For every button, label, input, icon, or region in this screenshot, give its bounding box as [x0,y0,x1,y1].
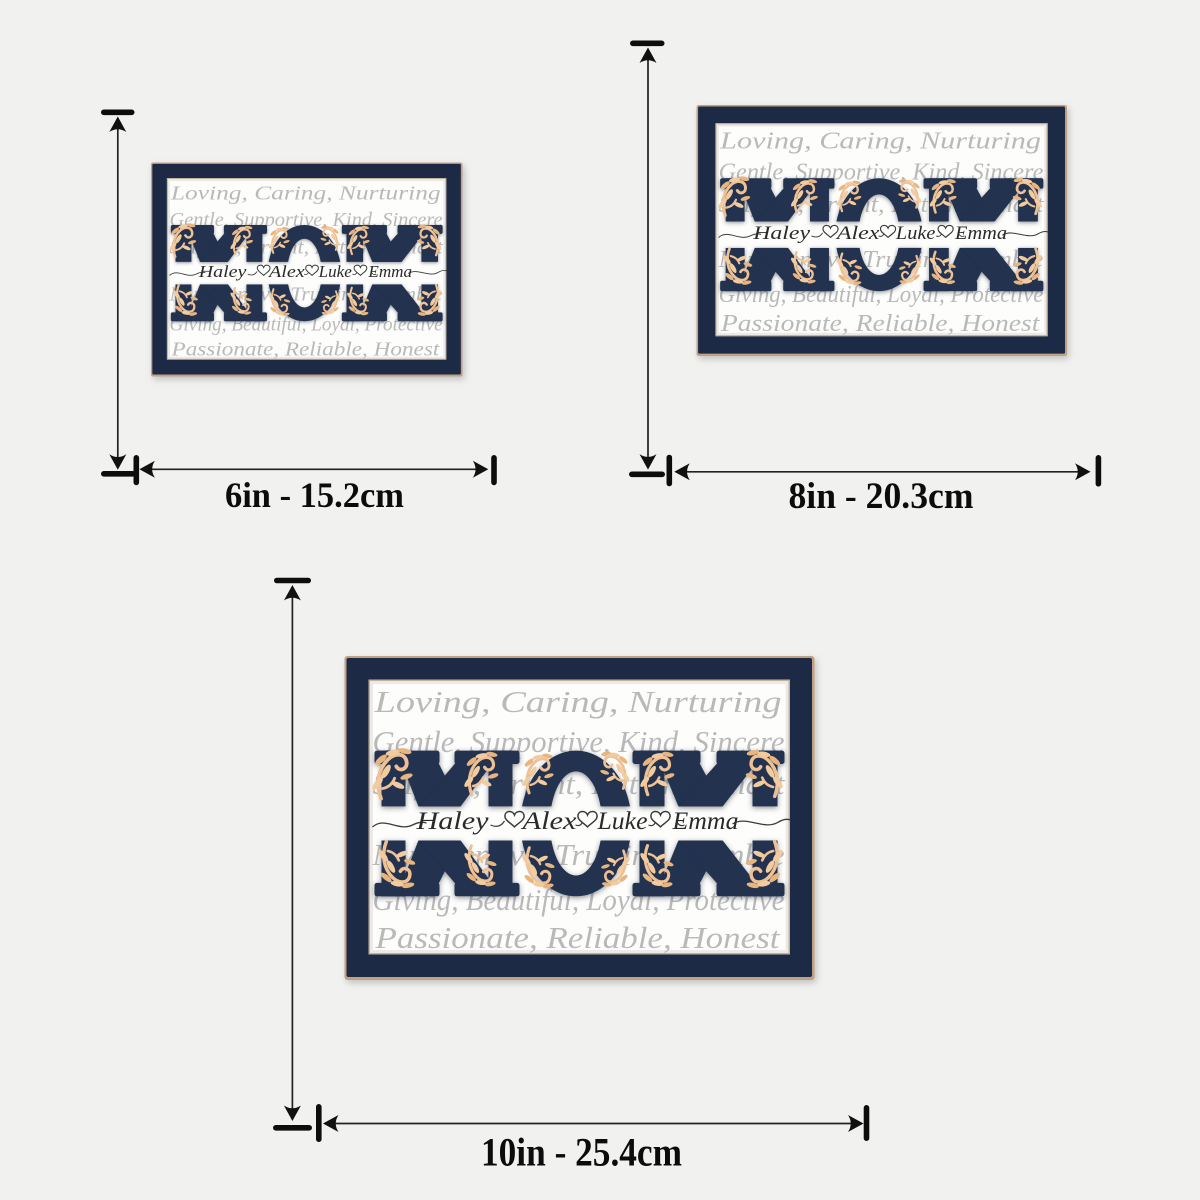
svg-text:6in - 15.2cm: 6in - 15.2cm [225,475,404,515]
svg-text:10in - 25.4cm: 10in - 25.4cm [481,1130,682,1175]
svg-text:8in - 20.3cm: 8in - 20.3cm [789,476,974,517]
